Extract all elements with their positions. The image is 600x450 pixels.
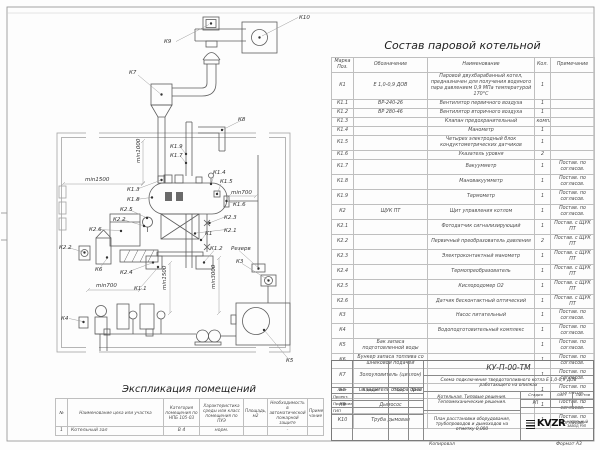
cell-qty: 1 xyxy=(535,264,551,279)
cell-qty: 1 xyxy=(535,189,551,204)
cell-qty: 1 xyxy=(535,99,551,108)
cell-pos: К4 xyxy=(332,324,354,339)
cell-pos: К2.2 xyxy=(332,234,354,249)
water-tank-k5 xyxy=(231,303,290,345)
label-k2-5: К2.5 xyxy=(120,207,133,213)
cell-name: Водоподготовительный комплекс xyxy=(428,324,535,339)
tb-empty xyxy=(408,400,423,407)
table-row: К1 Е 1,0-0,9 ДОВ Паровой двухбарабанный … xyxy=(332,72,595,99)
tb-empty xyxy=(332,361,352,387)
dim-min700-b: min700 xyxy=(96,283,117,289)
cell-note: Постав. с ЩУК ПТ xyxy=(551,264,595,279)
flue-duct xyxy=(158,64,216,183)
label-k6: К6 xyxy=(95,267,103,273)
cell-designation xyxy=(354,324,428,339)
label-k1-3: К1.3 xyxy=(127,187,140,193)
cell-pos: К1.9 xyxy=(332,189,354,204)
cell-name: Вентилятор вторичного воздуха xyxy=(428,108,535,117)
tb-empty xyxy=(352,400,388,407)
cell-pos: К1.3 xyxy=(332,117,354,126)
cell-designation xyxy=(354,279,428,294)
cell-pos: К2.1 xyxy=(332,219,354,234)
room-num: 1 xyxy=(56,427,68,436)
room-area xyxy=(244,427,268,436)
company-logo-cell: KVZR КОТЕЛЬНЫЙ ЗАВОД РЭП xyxy=(520,407,593,440)
cell-designation xyxy=(354,264,428,279)
cell-qty: 1 xyxy=(535,135,551,150)
col-qty: Кол. xyxy=(535,58,551,73)
table-row: К5 Бак запаса подготовленной воды 1 Пост… xyxy=(332,339,595,354)
kvzr-logo-icon xyxy=(526,420,535,429)
cell-note: Постав. с ЩУК ПТ xyxy=(551,279,595,294)
diagram-labels: К10 К9 К7 К8 К1.9 К1.7 К1.3 К1.8 К2.5 К2… xyxy=(59,15,310,364)
table-row: К3 Насос питательный 1 Постав. по соглас… xyxy=(332,309,595,324)
leader-lines xyxy=(68,18,298,359)
room-fire: - xyxy=(268,427,308,436)
cell-pos: К2 xyxy=(332,204,354,219)
label-rezerv: Резерв xyxy=(231,246,251,252)
cell-name: Четырех электродный блок кондуктометриче… xyxy=(428,135,535,150)
explication-header-row: №Наименование цеха или участкаКатегория … xyxy=(56,399,324,427)
col-note: Примечание xyxy=(551,58,595,73)
cell-designation xyxy=(354,294,428,309)
table-row: К1.4 Манометр 1 xyxy=(332,126,595,135)
cell-name: Электроконтактный манометр xyxy=(428,249,535,264)
cell-name xyxy=(428,339,535,354)
tb-empty xyxy=(388,393,408,400)
label-k1-6: К1.6 xyxy=(233,202,246,208)
explication-title: Экспликация помещений xyxy=(55,384,323,395)
object-name: Котельная. Типовые решения. Тепломеханич… xyxy=(423,391,520,410)
cell-name: Щит управления котлом xyxy=(428,204,535,219)
cell-name: Насос питательный xyxy=(428,309,535,324)
label-k8: К8 xyxy=(238,117,246,123)
tb-empty xyxy=(352,414,388,440)
composition-header-row: Марка Поз. Обозначение Наименование Кол.… xyxy=(332,58,595,73)
col-pos: Марка Поз. xyxy=(332,58,354,73)
tb-empty xyxy=(408,407,423,414)
cell-pos: К1.4 xyxy=(332,126,354,135)
cell-designation xyxy=(354,249,428,264)
dim-min700-a: min700 xyxy=(231,190,252,196)
cell-name: Манометр xyxy=(428,126,535,135)
tb-role-checked: Проверил xyxy=(332,400,352,407)
cell-note: Постав. по согласов. xyxy=(551,174,595,189)
cell-note: Постав. с ЩУК ПТ xyxy=(551,249,595,264)
cell-qty: 1 xyxy=(535,72,551,99)
cell-name: Термометр xyxy=(428,189,535,204)
tb-empty xyxy=(388,361,408,387)
tb-empty xyxy=(408,361,423,387)
room-category: В 4 xyxy=(164,427,200,436)
cell-pos: К1.1 xyxy=(332,99,354,108)
logo-sub-line2: ЗАВОД РЭП xyxy=(567,424,588,428)
cell-pos: К2.3 xyxy=(332,249,354,264)
cell-note: Постав. по согласов. xyxy=(551,324,595,339)
cell-designation xyxy=(354,135,428,150)
col-designation: Обозначение xyxy=(354,58,428,73)
footer-format: Формат А3 xyxy=(543,442,595,447)
table-row: К2.2 Первичный преобразователь давления … xyxy=(332,234,595,249)
tb-empty xyxy=(352,361,388,387)
cell-designation xyxy=(354,234,428,249)
explication-header-cell: Приме- чание xyxy=(308,399,324,427)
tb-empty xyxy=(388,407,408,414)
cell-pos: К1.2 xyxy=(332,108,354,117)
room-note xyxy=(308,427,324,436)
tb-role-project: Проект. xyxy=(332,393,352,400)
cell-note xyxy=(551,72,595,99)
tb-empty xyxy=(408,414,423,440)
cell-designation xyxy=(354,159,428,174)
cell-qty: 1 xyxy=(535,159,551,174)
sheet-label: Лист xyxy=(550,391,572,399)
table-row: К2.4 Термопреобразователь 1 Постав. с ЩУ… xyxy=(332,264,595,279)
label-k2-1: К2.1 xyxy=(224,228,237,234)
tb-empty xyxy=(352,393,388,400)
cell-designation xyxy=(354,309,428,324)
document-title: Схема подключения твердотопливного котла… xyxy=(423,375,593,391)
cell-name: Вакуумметр xyxy=(428,159,535,174)
label-k1-9: К1.9 xyxy=(170,144,183,150)
sheets-value: - xyxy=(572,399,593,407)
label-k9: К9 xyxy=(164,39,172,45)
cell-qty: 1 xyxy=(535,126,551,135)
cell-pos: К1.6 xyxy=(332,150,354,159)
table-row: К1.3 Клапан предохранительный компл. xyxy=(332,117,595,126)
table-row: К1.9 Термометр 1 Постав. по согласов. xyxy=(332,189,595,204)
cell-note: Постав. с ЩУК ПТ xyxy=(551,219,595,234)
kvzr-logo-text: KVZR xyxy=(537,418,565,430)
cell-note xyxy=(551,150,595,159)
sheet-value: - xyxy=(550,399,572,407)
tb-role-gip: ГИП xyxy=(332,407,352,414)
table-row: К1.1 ВР-240-26 Вентилятор первичного воз… xyxy=(332,99,595,108)
label-k5: К5 xyxy=(286,358,294,364)
cell-note: Постав. по согласов. xyxy=(551,159,595,174)
table-row: К2.3 Электроконтактный манометр 1 Постав… xyxy=(332,249,595,264)
cell-qty: 1 xyxy=(535,174,551,189)
label-k2-6: К2.6 xyxy=(89,227,102,233)
table-row: К2 ЩУК ПТ Щит управления котлом 1 Постав… xyxy=(332,204,595,219)
label-k2-3: К2.3 xyxy=(224,215,237,221)
table-row: К4 Водоподготовительный комплекс 1 Поста… xyxy=(332,324,595,339)
dim-min1500-a: min1500 xyxy=(85,177,110,183)
wall-openings xyxy=(86,131,269,354)
cell-qty: 1 xyxy=(535,219,551,234)
tb-empty xyxy=(408,393,423,400)
cell-pos: К2.6 xyxy=(332,294,354,309)
explication-header-cell: Площадь, м2 xyxy=(244,399,268,427)
smoke-exhauster-k9 xyxy=(195,17,246,64)
cell-designation xyxy=(354,189,428,204)
explication-header-cell: № xyxy=(56,399,68,427)
label-k1-8: К1.8 xyxy=(127,197,140,203)
cell-qty: 1 xyxy=(535,324,551,339)
label-k1-7: К1.7 xyxy=(170,153,183,159)
explication-header-cell: Наименование цеха или участка xyxy=(68,399,164,427)
cell-note: Постав. с ЩУК ПТ xyxy=(551,234,595,249)
cell-note xyxy=(551,135,595,150)
sheets-label: Листов xyxy=(572,391,593,399)
cell-designation xyxy=(354,126,428,135)
cell-note: Постав. по согласов. xyxy=(551,339,595,354)
label-k2-2a: К2.2 xyxy=(113,217,126,223)
room-env: норм. xyxy=(200,427,244,436)
dim-min1500-b: min1500 xyxy=(162,265,168,290)
label-k4: К4 xyxy=(61,316,69,322)
cell-qty: 1 xyxy=(535,108,551,117)
sheet-name: План расстановки оборудования, трубопров… xyxy=(423,410,520,440)
cell-designation: Е 1,0-0,9 ДОВ xyxy=(354,72,428,99)
cell-qty: 1 xyxy=(535,309,551,324)
cell-qty: 1 xyxy=(535,339,551,354)
label-k1: К1 xyxy=(205,231,212,237)
footer-copied: Копировал xyxy=(412,442,472,447)
cell-note xyxy=(551,117,595,126)
explication-table: №Наименование цеха или участкаКатегория … xyxy=(55,398,324,436)
explication-header-cell: Необходимость в автоматической пожарной … xyxy=(268,399,308,427)
label-k7: К7 xyxy=(129,70,137,76)
cell-note xyxy=(551,108,595,117)
table-row: К1.5 Четырех электродный блок кондуктоме… xyxy=(332,135,595,150)
feed-pump-k3 xyxy=(252,155,276,303)
cell-designation: ВР 280-46 xyxy=(354,108,428,117)
cell-name: Датчик бесконтактный оптический xyxy=(428,294,535,309)
cell-qty: компл. xyxy=(535,117,551,126)
document-code: КУ-П-00-ТМ xyxy=(423,361,593,375)
stage-label: Стадия xyxy=(520,391,550,399)
label-k1-4: К1.4 xyxy=(213,170,226,176)
label-k1-5: К1.5 xyxy=(220,179,233,185)
cell-pos: К1.5 xyxy=(332,135,354,150)
cell-designation xyxy=(354,219,428,234)
cell-name: Вентилятор первичного воздуха xyxy=(428,99,535,108)
cell-qty: 2 xyxy=(535,150,551,159)
cell-pos: К5 xyxy=(332,339,354,354)
cell-note: Постав. по согласов. xyxy=(551,309,595,324)
cell-pos: К1 xyxy=(332,72,354,99)
cell-designation: ВР-240-26 xyxy=(354,99,428,108)
tb-empty xyxy=(352,407,388,414)
label-k3: К3 xyxy=(236,259,244,265)
explication-row: 1 Котельный зал В 4 норм. - xyxy=(56,427,324,436)
table-row: К1.6 Указатель уровня 2 xyxy=(332,150,595,159)
cell-name: Термопреобразователь xyxy=(428,264,535,279)
table-row: К2.1 Фотодатчик сигнализирующий 1 Постав… xyxy=(332,219,595,234)
cell-qty: 1 xyxy=(535,294,551,309)
room-walls xyxy=(57,133,290,352)
cell-note: Постав. по согласов. xyxy=(551,189,595,204)
title-block: Лист N докум Подп. Дата Проект. Проверил… xyxy=(331,360,594,441)
tb-empty xyxy=(332,414,352,440)
label-k10: К10 xyxy=(299,15,310,21)
cell-qty: 1 xyxy=(535,249,551,264)
cell-qty: 1 xyxy=(535,279,551,294)
drawing-sheet: К10 К9 К7 К8 К1.9 К1.7 К1.3 К1.8 К2.5 К2… xyxy=(0,0,600,450)
cell-name: Мановакуумметр xyxy=(428,174,535,189)
explication-header-cell: Категория помещения по НПБ 105-03 xyxy=(164,399,200,427)
cell-designation: ЩУК ПТ xyxy=(354,204,428,219)
feed-pumps xyxy=(195,330,236,345)
label-k2-2b: К2.2 xyxy=(59,245,72,251)
label-k1-2: К1.2 xyxy=(210,246,223,252)
table-row: К1.7 Вакуумметр 1 Постав. по согласов. xyxy=(332,159,595,174)
table-row: К2.5 Кислородомер О2 1 Постав. с ЩУК ПТ xyxy=(332,279,595,294)
cell-pos: К3 xyxy=(332,309,354,324)
sample-cooler-k8 xyxy=(198,127,225,151)
label-k2-4: К2.4 xyxy=(120,270,133,276)
table-row: К2.6 Датчик бесконтактный оптический 1 П… xyxy=(332,294,595,309)
table-row: К1.8 Мановакуумметр 1 Постав. по согласо… xyxy=(332,174,595,189)
cell-note xyxy=(551,99,595,108)
cell-name: Указатель уровня xyxy=(428,150,535,159)
cell-pos: К1.7 xyxy=(332,159,354,174)
cell-name: Первичный преобразователь давления xyxy=(428,234,535,249)
cell-pos: К2.5 xyxy=(332,279,354,294)
cell-note: Постав. с ЩУК ПТ xyxy=(551,294,595,309)
composition-title: Состав паровой котельной xyxy=(331,39,594,52)
col-name: Наименование xyxy=(428,58,535,73)
cell-pos: К2.4 xyxy=(332,264,354,279)
cell-qty: 2 xyxy=(535,234,551,249)
tb-empty xyxy=(388,400,408,407)
label-k1-1: К1.1 xyxy=(134,286,147,292)
cell-name: Паровой двухбарабанный котел, предназнач… xyxy=(428,72,535,99)
dim-min1000: min1000 xyxy=(136,138,142,163)
cell-pos: К1.8 xyxy=(332,174,354,189)
tb-empty xyxy=(388,414,408,440)
cell-designation: Бак запаса подготовленной воды xyxy=(354,339,428,354)
explication-header-cell: Характеристика среды или класс помещения… xyxy=(200,399,244,427)
cell-designation xyxy=(354,117,428,126)
cell-name: Клапан предохранительный xyxy=(428,117,535,126)
stage-value: РП xyxy=(520,399,550,407)
cell-designation xyxy=(354,174,428,189)
cell-name: Фотодатчик сигнализирующий xyxy=(428,219,535,234)
cyclone-k7 xyxy=(151,84,172,117)
room-name: Котельный зал xyxy=(68,427,164,436)
cell-qty: 1 xyxy=(535,204,551,219)
table-row: К1.2 ВР 280-46 Вентилятор вторичного воз… xyxy=(332,108,595,117)
cell-name: Кислородомер О2 xyxy=(428,279,535,294)
cell-designation xyxy=(354,150,428,159)
dim-min3000: min3000 xyxy=(211,264,217,289)
cell-note: Постав. по согласов. xyxy=(551,204,595,219)
cell-note xyxy=(551,126,595,135)
